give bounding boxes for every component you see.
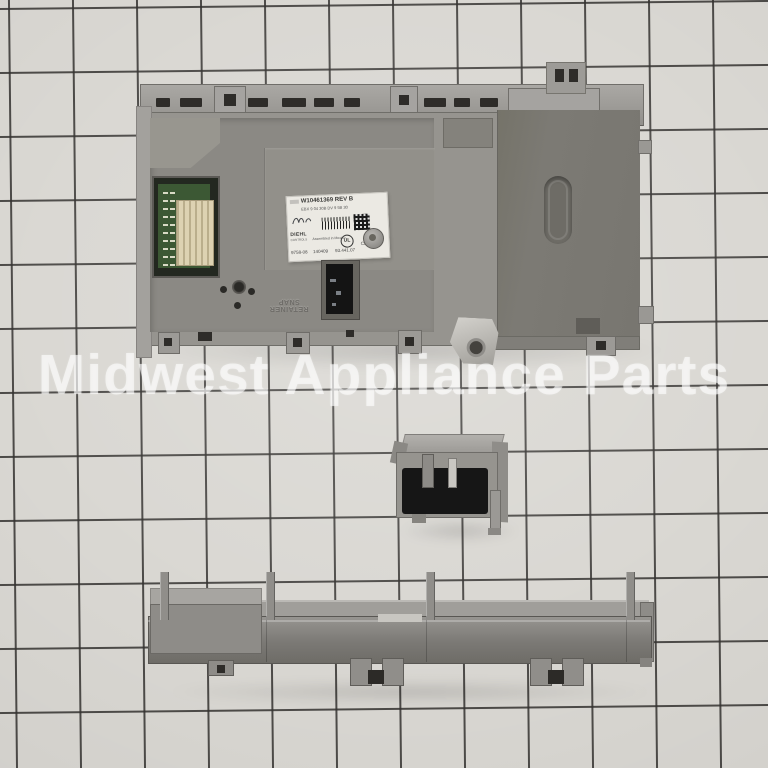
label-lot-code: 140409 bbox=[313, 249, 328, 254]
mounting-hole bbox=[220, 286, 227, 293]
rail-double-clip bbox=[530, 658, 582, 688]
rail-seam bbox=[266, 616, 267, 662]
clip-prong bbox=[562, 658, 584, 686]
label-date-code: 9758-08 bbox=[291, 250, 308, 255]
mounting-rail-bracket bbox=[146, 574, 658, 694]
label-fine-print-smudge bbox=[290, 200, 299, 204]
board-right-panel bbox=[497, 110, 640, 344]
clip-prong bbox=[382, 658, 404, 686]
clip-right-foot bbox=[488, 528, 501, 535]
foam-retainer-clip bbox=[392, 428, 514, 538]
vent-slot bbox=[480, 98, 498, 107]
top-mounting-tab bbox=[546, 62, 586, 94]
pcb-connector-window bbox=[152, 176, 220, 278]
panel-notch bbox=[576, 318, 600, 334]
rail-right-foot bbox=[640, 658, 652, 667]
rail-foot bbox=[208, 660, 234, 676]
rail-double-clip bbox=[350, 658, 402, 688]
emboss-line1: RETAINER bbox=[258, 305, 320, 312]
data-matrix-code bbox=[353, 214, 370, 231]
label-part-number: W10461369 REV B bbox=[301, 196, 354, 204]
emboss-line2: SNAP bbox=[258, 298, 320, 305]
clip-dark-center bbox=[368, 670, 384, 684]
watermark: Midwest Appliance Parts bbox=[12, 342, 756, 408]
clip-bottom-tab bbox=[412, 514, 426, 523]
snap-tab-hole bbox=[399, 95, 409, 105]
product-label: W10461369 REV B EBX 9 04 30B DV 9 5B 30 … bbox=[286, 192, 391, 262]
snap-tab-hole bbox=[224, 94, 236, 106]
product-photo: W10461369 REV B EBX 9 04 30B DV 9 5B 30 … bbox=[0, 0, 768, 768]
relay-glint bbox=[332, 303, 336, 306]
clip-post bbox=[422, 454, 434, 488]
clip-dark-center bbox=[548, 670, 564, 684]
tab-slot bbox=[555, 69, 564, 82]
rail-seam bbox=[626, 616, 627, 662]
label-brand-sub: CONTROLS bbox=[290, 238, 307, 242]
snap-tab bbox=[390, 86, 418, 114]
rail-center-gap bbox=[378, 614, 422, 622]
relay-glint bbox=[330, 279, 336, 282]
retainer-emboss: RETAINER SNAP bbox=[258, 286, 320, 312]
vent-slot bbox=[282, 98, 306, 107]
handle-slot-rim bbox=[548, 180, 568, 240]
vent-slot bbox=[344, 98, 360, 107]
label-ref-code: 93.441.07 bbox=[335, 248, 355, 253]
rail-post bbox=[426, 572, 435, 620]
snap-tab bbox=[214, 86, 246, 114]
rail-foot-hole bbox=[217, 665, 225, 673]
handwritten-initials bbox=[290, 214, 313, 227]
vent-slot bbox=[424, 98, 446, 107]
torx-screw bbox=[363, 228, 384, 249]
barcode bbox=[322, 216, 350, 229]
pcb-pin-column bbox=[170, 190, 175, 266]
bottom-notch bbox=[346, 330, 354, 337]
edge-connector bbox=[176, 200, 214, 266]
relay-glint bbox=[336, 291, 341, 295]
vent-slot bbox=[248, 98, 268, 107]
handle-slot bbox=[544, 176, 572, 244]
foam-insert bbox=[402, 468, 488, 514]
mounting-hole bbox=[234, 302, 241, 309]
rail-post bbox=[626, 572, 635, 620]
main-control-board: W10461369 REV B EBX 9 04 30B DV 9 5B 30 … bbox=[136, 60, 660, 360]
rail-post bbox=[266, 572, 275, 620]
tab-slot bbox=[569, 69, 578, 82]
screw-recess bbox=[369, 234, 376, 241]
vent-slot bbox=[454, 98, 470, 107]
vent-slot bbox=[314, 98, 334, 107]
mounting-hole bbox=[248, 288, 255, 295]
right-side-tab bbox=[638, 140, 652, 154]
mounting-hole bbox=[232, 280, 246, 294]
pcb-pin-column bbox=[163, 190, 168, 266]
ul-logo: UL bbox=[340, 234, 354, 248]
right-side-tab bbox=[638, 306, 654, 324]
relay-component bbox=[326, 264, 353, 314]
vent-slot bbox=[156, 98, 170, 107]
rail-seam bbox=[426, 616, 427, 662]
bottom-notch bbox=[198, 332, 212, 341]
panel-hang-block bbox=[443, 118, 493, 148]
relay-window bbox=[321, 260, 360, 320]
vent-slot bbox=[180, 98, 202, 107]
label-spec-line: EBX 9 04 30B DV 9 5B 30 bbox=[301, 206, 348, 212]
rail-post bbox=[160, 572, 169, 620]
clip-post-light bbox=[448, 458, 457, 488]
